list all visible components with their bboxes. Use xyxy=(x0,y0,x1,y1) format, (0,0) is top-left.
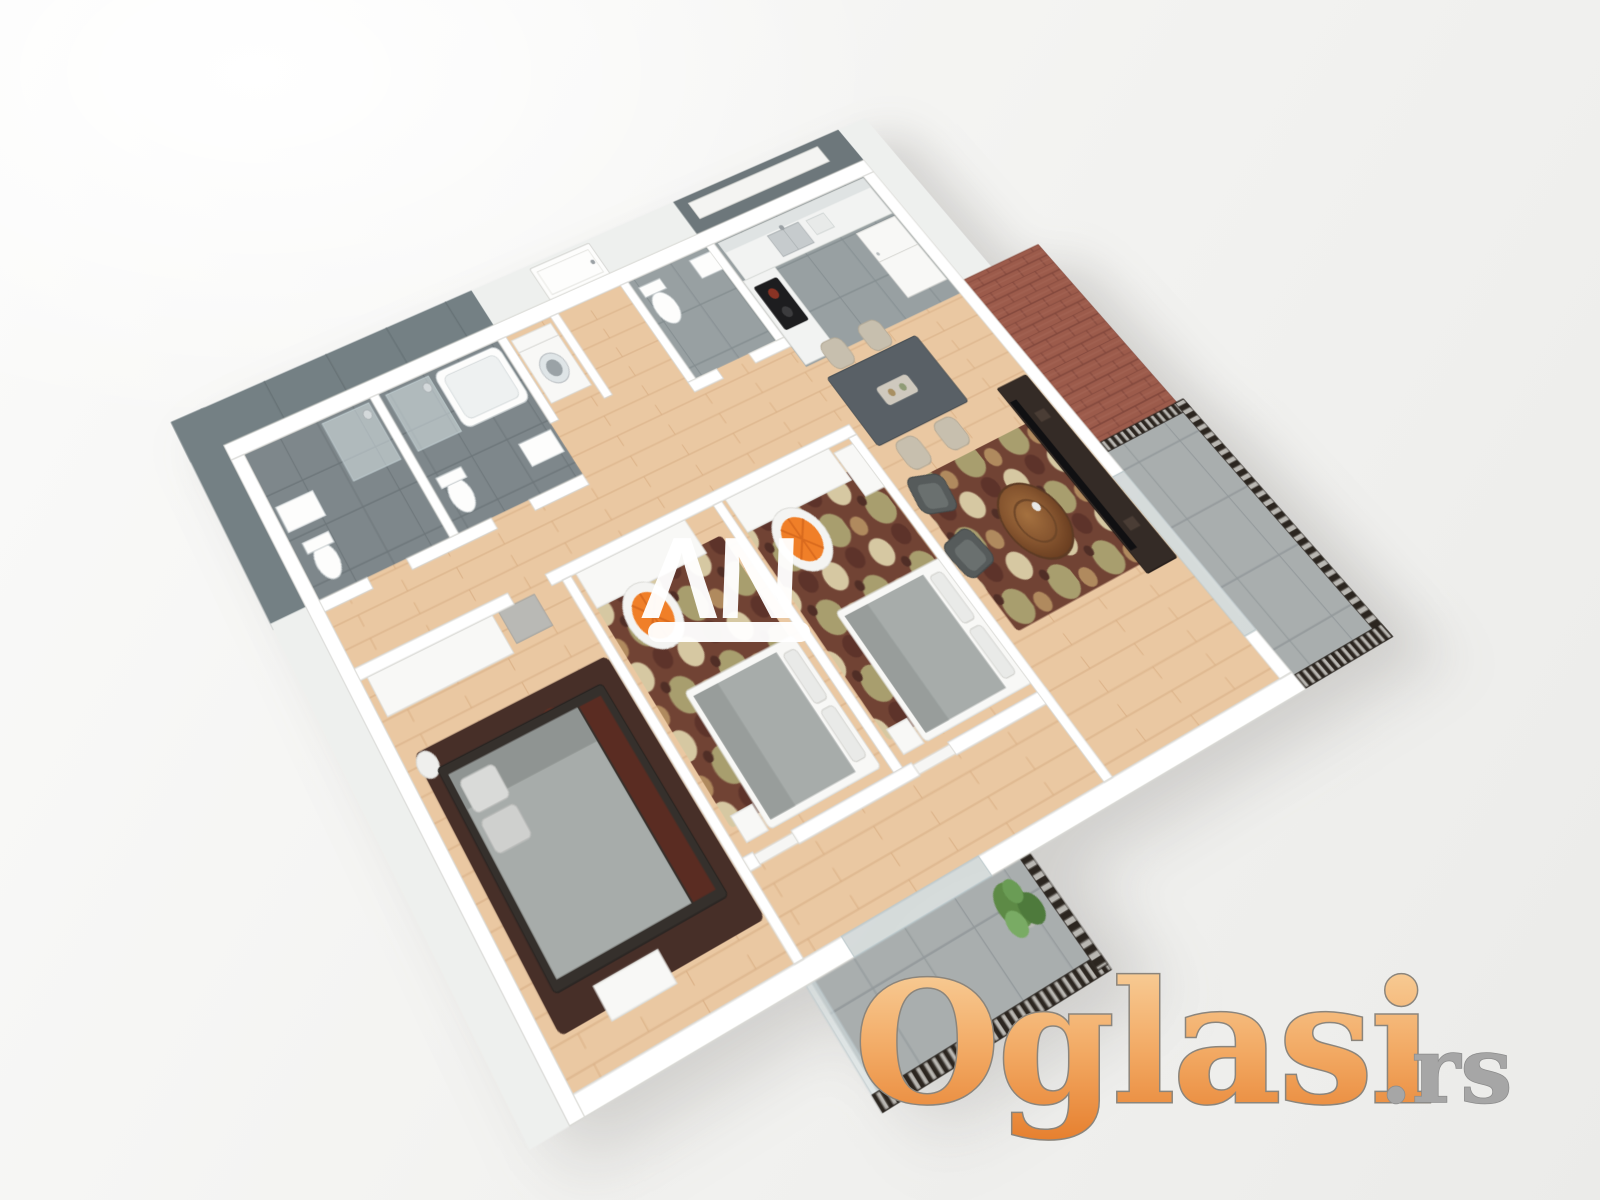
agency-logo-underline xyxy=(648,622,810,642)
site-name-text: Oglasi xyxy=(854,944,1431,1142)
agency-logo-text: ΛN xyxy=(640,520,874,636)
site-tld-text: .rs xyxy=(1380,1016,1512,1124)
agency-watermark: ΛN xyxy=(642,520,872,670)
site-watermark: Oglasi .rs xyxy=(840,930,1580,1180)
real-estate-render: ΛN Oglasi .rs xyxy=(0,0,1600,1200)
